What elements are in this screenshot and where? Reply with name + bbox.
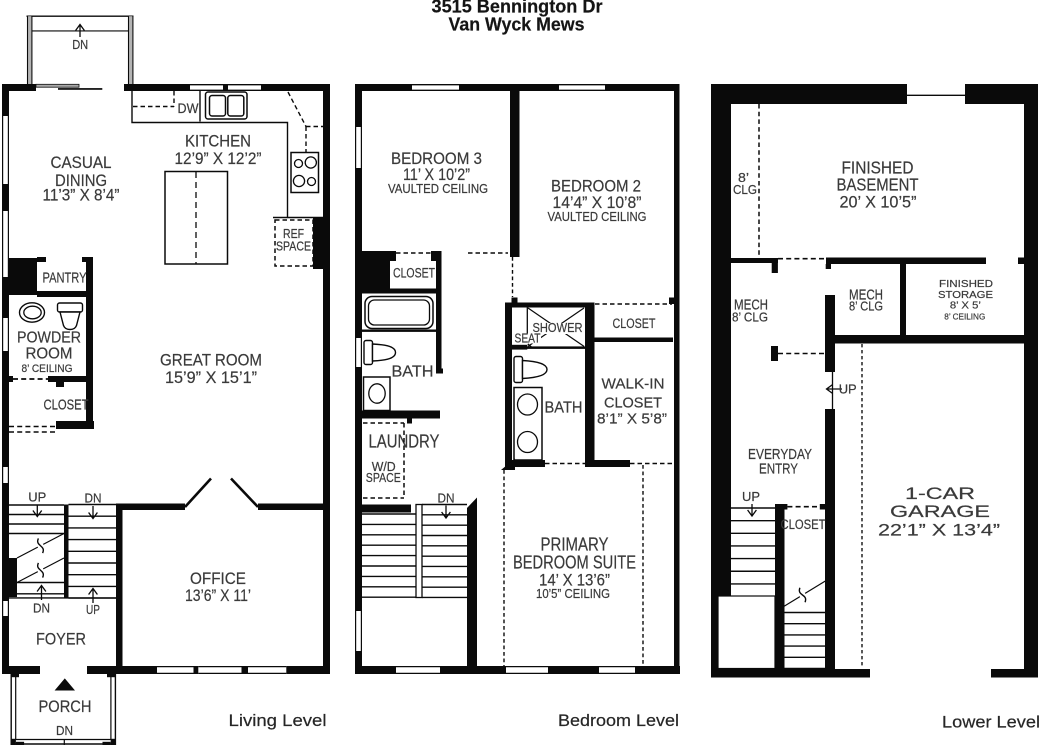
svg-text:DN: DN [56, 724, 73, 738]
svg-text:22’1” X 13’4”: 22’1” X 13’4” [878, 521, 1000, 540]
svg-text:Van Wyck Mews: Van Wyck Mews [449, 15, 585, 35]
svg-text:8’ CLG: 8’ CLG [732, 311, 768, 325]
svg-text:CLOSET: CLOSET [393, 266, 435, 281]
svg-text:WALK-IN: WALK-IN [602, 376, 665, 393]
svg-text:10’5” CEILING: 10’5” CEILING [536, 587, 610, 601]
svg-text:FOYER: FOYER [36, 630, 86, 649]
svg-text:ROOM: ROOM [26, 346, 73, 363]
svg-text:BATH: BATH [545, 400, 583, 417]
svg-text:STORAGE: STORAGE [938, 289, 993, 301]
svg-text:13’6” X 11’: 13’6” X 11’ [185, 587, 251, 605]
svg-text:DW: DW [178, 101, 199, 116]
svg-text:12’9” X 12’2”: 12’9” X 12’2” [175, 150, 262, 168]
svg-text:UP: UP [742, 489, 760, 504]
svg-text:GARAGE: GARAGE [890, 502, 990, 521]
svg-text:CLOSET: CLOSET [44, 398, 89, 414]
svg-text:DN: DN [438, 491, 455, 506]
svg-text:SPACE: SPACE [366, 471, 401, 485]
svg-text:UP: UP [839, 382, 857, 397]
svg-text:8’1” X 5’8”: 8’1” X 5’8” [597, 411, 667, 428]
svg-text:CLG: CLG [733, 183, 757, 197]
svg-text:CASUAL: CASUAL [51, 153, 112, 172]
svg-text:DN: DN [85, 491, 102, 506]
svg-text:PANTRY: PANTRY [43, 271, 87, 287]
svg-text:Lower Level: Lower Level [942, 714, 1040, 732]
svg-text:Bedroom Level: Bedroom Level [558, 712, 679, 730]
svg-text:PORCH: PORCH [39, 698, 92, 716]
svg-text:OFFICE: OFFICE [190, 569, 246, 588]
svg-text:POWDER: POWDER [17, 330, 81, 347]
svg-text:DN: DN [33, 601, 50, 616]
svg-text:8’ CLG: 8’ CLG [849, 300, 883, 314]
svg-text:GREAT ROOM: GREAT ROOM [160, 351, 262, 370]
svg-text:CLOSET: CLOSET [604, 395, 662, 412]
svg-text:VAULTED CEILING: VAULTED CEILING [388, 182, 488, 196]
svg-text:CLOSET: CLOSET [613, 316, 656, 331]
svg-text:VAULTED CEILING: VAULTED CEILING [548, 210, 647, 224]
svg-text:8’ CEILING: 8’ CEILING [22, 363, 73, 375]
svg-text:15’9” X 15’1”: 15’9” X 15’1” [165, 369, 257, 387]
svg-text:BEDROOM SUITE: BEDROOM SUITE [513, 553, 636, 573]
svg-text:BASEMENT: BASEMENT [837, 175, 919, 195]
svg-text:PRIMARY: PRIMARY [541, 535, 609, 555]
svg-text:DN: DN [72, 38, 88, 52]
svg-text:CLOSET: CLOSET [781, 517, 826, 532]
svg-text:ENTRY: ENTRY [759, 461, 798, 478]
svg-text:BATH: BATH [392, 364, 434, 381]
svg-text:UP: UP [86, 602, 100, 617]
svg-text:SPACE: SPACE [276, 239, 311, 254]
svg-text:UP: UP [28, 490, 46, 505]
svg-text:Living Level: Living Level [229, 712, 327, 730]
svg-text:8’ X 5’: 8’ X 5’ [950, 301, 981, 312]
svg-text:20’ X 10’5”: 20’ X 10’5” [840, 193, 917, 212]
svg-text:11’3” X 8’4”: 11’3” X 8’4” [43, 187, 120, 205]
svg-text:1-CAR: 1-CAR [905, 484, 975, 503]
svg-text:BEDROOM 2: BEDROOM 2 [551, 177, 641, 196]
svg-text:8’ CEILING: 8’ CEILING [944, 312, 985, 322]
svg-text:KITCHEN: KITCHEN [185, 132, 251, 151]
svg-text:SEAT: SEAT [515, 332, 541, 346]
